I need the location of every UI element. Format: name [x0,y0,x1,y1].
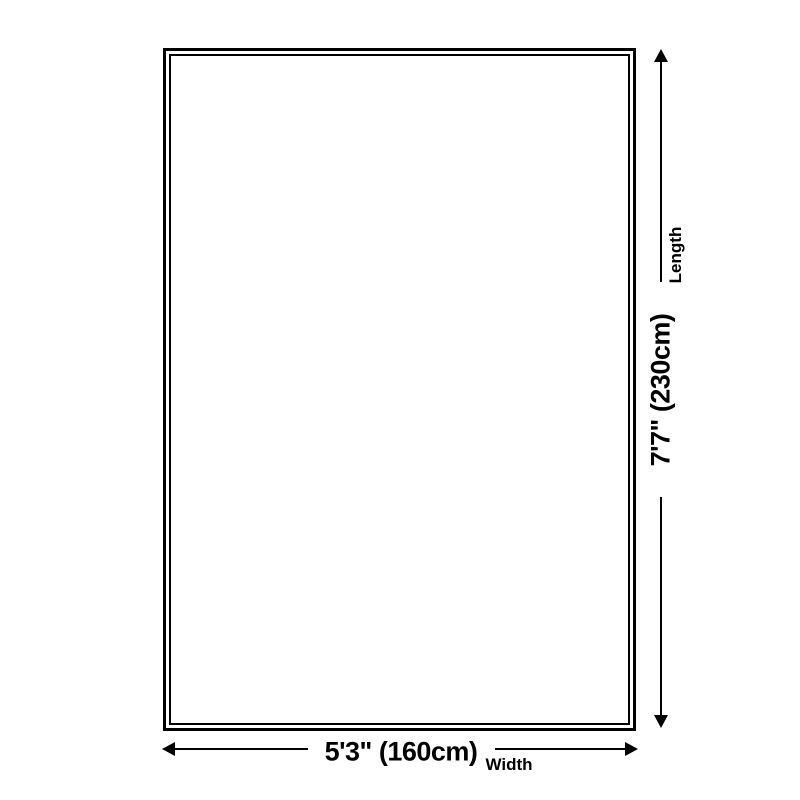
arrow-down-icon [654,715,668,728]
width-label: Width [485,755,532,775]
rug-dimension-diagram: Length 7'7" (230cm) 5'3" (160cm) Width [0,0,800,800]
width-value: 5'3" (160cm) [325,737,478,768]
width-arrow-left-line [172,748,308,750]
length-label: Length [666,227,686,284]
arrow-right-icon [625,742,638,756]
length-arrow-upper-line [660,60,662,282]
length-value: 7'7" (230cm) [646,314,677,467]
width-arrow-right-line [495,748,627,750]
length-arrow-lower-line [660,497,662,716]
rug-inner-border [169,54,630,725]
rug-outline [163,48,636,731]
